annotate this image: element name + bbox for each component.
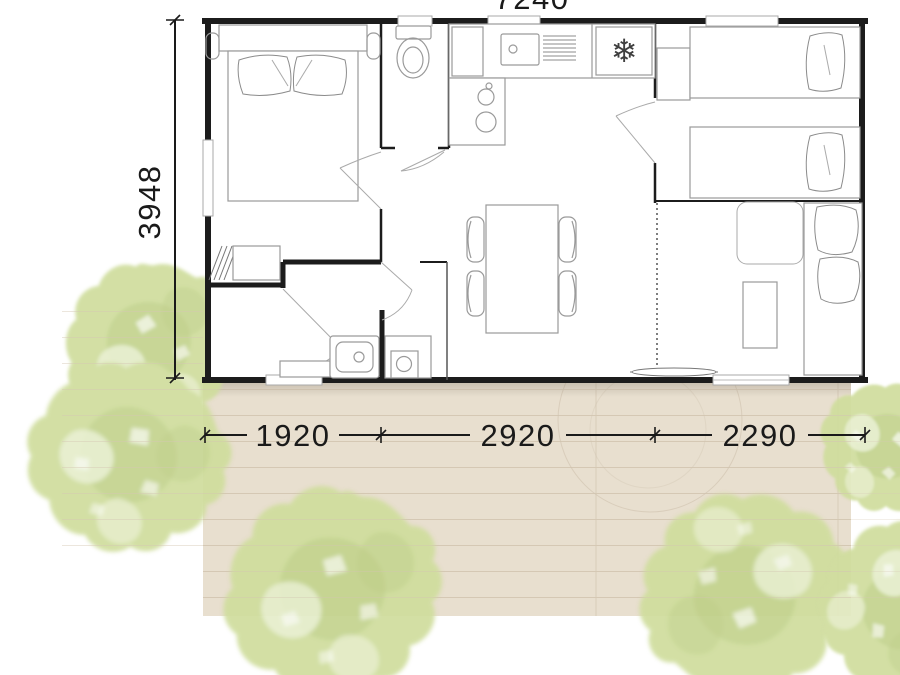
- pillow: [238, 55, 291, 95]
- window: [706, 16, 778, 26]
- pillow: [806, 133, 845, 192]
- dimension-top-label: 7240: [495, 0, 570, 16]
- mobile-home-plan: ❄: [202, 16, 868, 385]
- chair: [467, 217, 484, 262]
- pillow: [815, 205, 859, 254]
- snowflake-icon: ❄: [611, 32, 638, 70]
- chair: [559, 217, 576, 262]
- dimension-bottom: 1920 2920 2290: [200, 418, 870, 453]
- pillow: [806, 33, 845, 92]
- headboard: [219, 25, 367, 51]
- dimension-bottom-label-2: 2920: [481, 418, 556, 453]
- chair: [467, 271, 484, 316]
- coffee-table: [743, 282, 777, 348]
- dimension-left-label: 3948: [132, 165, 167, 240]
- dimension-bottom-label-3: 2290: [723, 418, 798, 453]
- pillow: [818, 257, 860, 303]
- floorplan-canvas: ❄: [0, 0, 900, 675]
- pillow: [293, 55, 346, 95]
- window: [203, 140, 213, 216]
- window: [398, 16, 432, 26]
- chair: [559, 271, 576, 316]
- floorplan-page: ❄: [0, 0, 900, 675]
- dimension-bottom-label-1: 1920: [256, 418, 331, 453]
- drainer: [543, 36, 576, 60]
- sliding-door: [630, 368, 718, 376]
- shower-bench: [280, 361, 330, 377]
- hob-cabinet: [449, 78, 505, 145]
- dimension-top-cropped: 7240: [495, 0, 570, 16]
- dining-table: [486, 205, 558, 333]
